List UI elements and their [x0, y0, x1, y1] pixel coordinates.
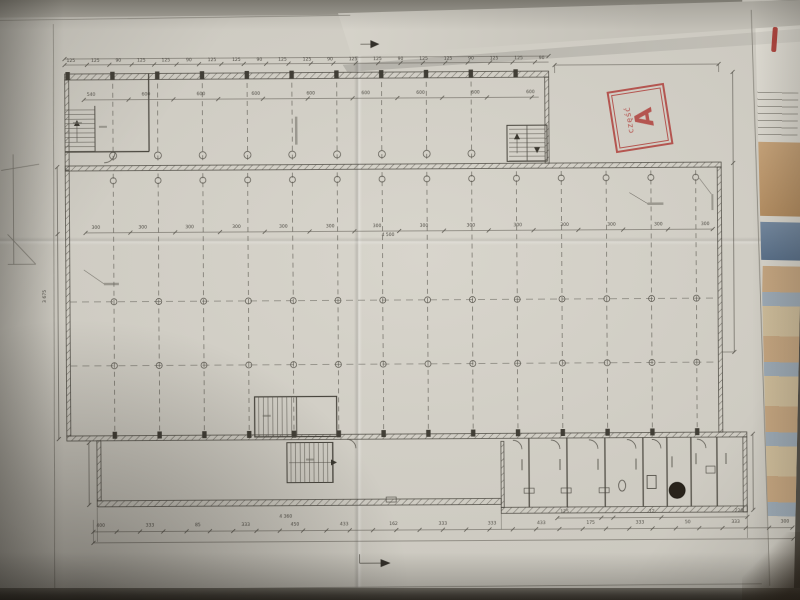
dimension-value: 125 — [349, 58, 358, 63]
dimension-value: 300 — [326, 225, 335, 230]
dimension-value: 600 — [471, 92, 480, 97]
dimension-value: 333 — [241, 523, 250, 528]
dimension-value: 333 — [438, 522, 447, 527]
dimension-value: 300 — [232, 226, 241, 231]
desk-edge — [0, 588, 800, 600]
section-marker-a-bottom-icon — [381, 559, 391, 567]
dimension-value: 50 — [685, 521, 691, 526]
dimension-value: 600 — [416, 92, 425, 97]
dimension-left-vertical: 3 675 — [44, 290, 49, 303]
dimension-value: 90 — [327, 58, 333, 63]
dimension-value: 300 — [607, 224, 616, 229]
dimension-value: 600 — [251, 93, 260, 98]
dimension-value: 433 — [537, 522, 546, 527]
desk-corner — [742, 532, 800, 600]
dimension-value: 600 — [306, 93, 315, 98]
dimension-value: 300 — [467, 225, 476, 230]
dimension-value: 600 — [361, 92, 370, 97]
dimension-value: 333 — [731, 520, 740, 525]
dimension-value: 125 — [278, 58, 287, 63]
stamp-letter: A — [632, 106, 656, 128]
dimension-value: 90 — [186, 59, 192, 64]
dimension-value: 125 — [490, 57, 499, 62]
dimension-value: 300 — [560, 224, 569, 229]
stamp-content: część A — [623, 102, 657, 133]
dimension-total-bottom: 4 360 — [279, 516, 292, 521]
plan-layer-rooms — [347, 437, 717, 508]
dimension-value: 125 — [303, 58, 312, 63]
dimension-value: 125 — [208, 59, 217, 64]
dimension-value: 125 — [419, 57, 428, 62]
dimension-value: 125 — [444, 57, 453, 62]
dimension-value: 300 — [654, 223, 663, 228]
dimension-value: 600 — [142, 94, 151, 99]
dimension-value: 162 — [389, 523, 398, 528]
dimension-value: 85 — [195, 524, 201, 529]
dimension-value: 300 — [781, 520, 790, 525]
dimension-value: 175 — [586, 521, 595, 526]
dimension-value: 300 — [185, 226, 194, 231]
dimension-value: 125 — [232, 58, 241, 63]
red-approval-stamp: część A — [607, 83, 674, 153]
dimension-value: 125 — [137, 59, 146, 64]
dimension-value: 333 — [488, 522, 497, 527]
dimension-value: 125 — [162, 59, 171, 64]
dimension-value: 300 — [92, 227, 101, 232]
dimension-value: 90 — [398, 57, 404, 62]
dimension-value: 300 — [373, 225, 382, 230]
dimension-value: 125 — [91, 59, 100, 64]
dimension-value: 600 — [526, 91, 535, 96]
dimension-value: 300 — [701, 223, 710, 228]
dimension-value: 90 — [539, 57, 545, 62]
dimension-value: 300 — [138, 227, 147, 232]
dimension-value: 90 — [468, 57, 474, 62]
dimension-value: 333 — [636, 521, 645, 526]
dimension-value: 540 — [87, 94, 96, 99]
dimension-value: 600 — [197, 93, 206, 98]
dimension-value: 90 — [115, 59, 121, 64]
dimension-total-middle: 4 500 — [382, 234, 395, 239]
dimension-value: 300 — [420, 225, 429, 230]
dimension-value: 333 — [146, 524, 155, 529]
plan-layer-stairs — [65, 71, 549, 484]
dimension-value: 400 — [96, 524, 105, 529]
dimension-value: 125 — [514, 57, 523, 62]
dimension-value: 228 — [735, 509, 744, 514]
dimension-value: 433 — [340, 523, 349, 528]
dimension-value: 125 — [67, 59, 76, 64]
section-marker-a-top-icon — [370, 40, 379, 48]
photo-of-blueprint: 1251259012512590125125901251259012512590… — [0, 0, 800, 600]
dimension-value: 125 — [373, 58, 382, 63]
dimension-value: 90 — [257, 58, 263, 63]
dimension-value: 125 — [560, 510, 569, 515]
dimension-value: 300 — [513, 224, 522, 229]
floor-plan-drawing: 1251259012512590125125901251259012512590… — [0, 0, 800, 600]
dimension-value: 300 — [279, 226, 288, 231]
dimension-value: 450 — [291, 523, 300, 528]
dimension-value: 12 — [649, 510, 655, 515]
